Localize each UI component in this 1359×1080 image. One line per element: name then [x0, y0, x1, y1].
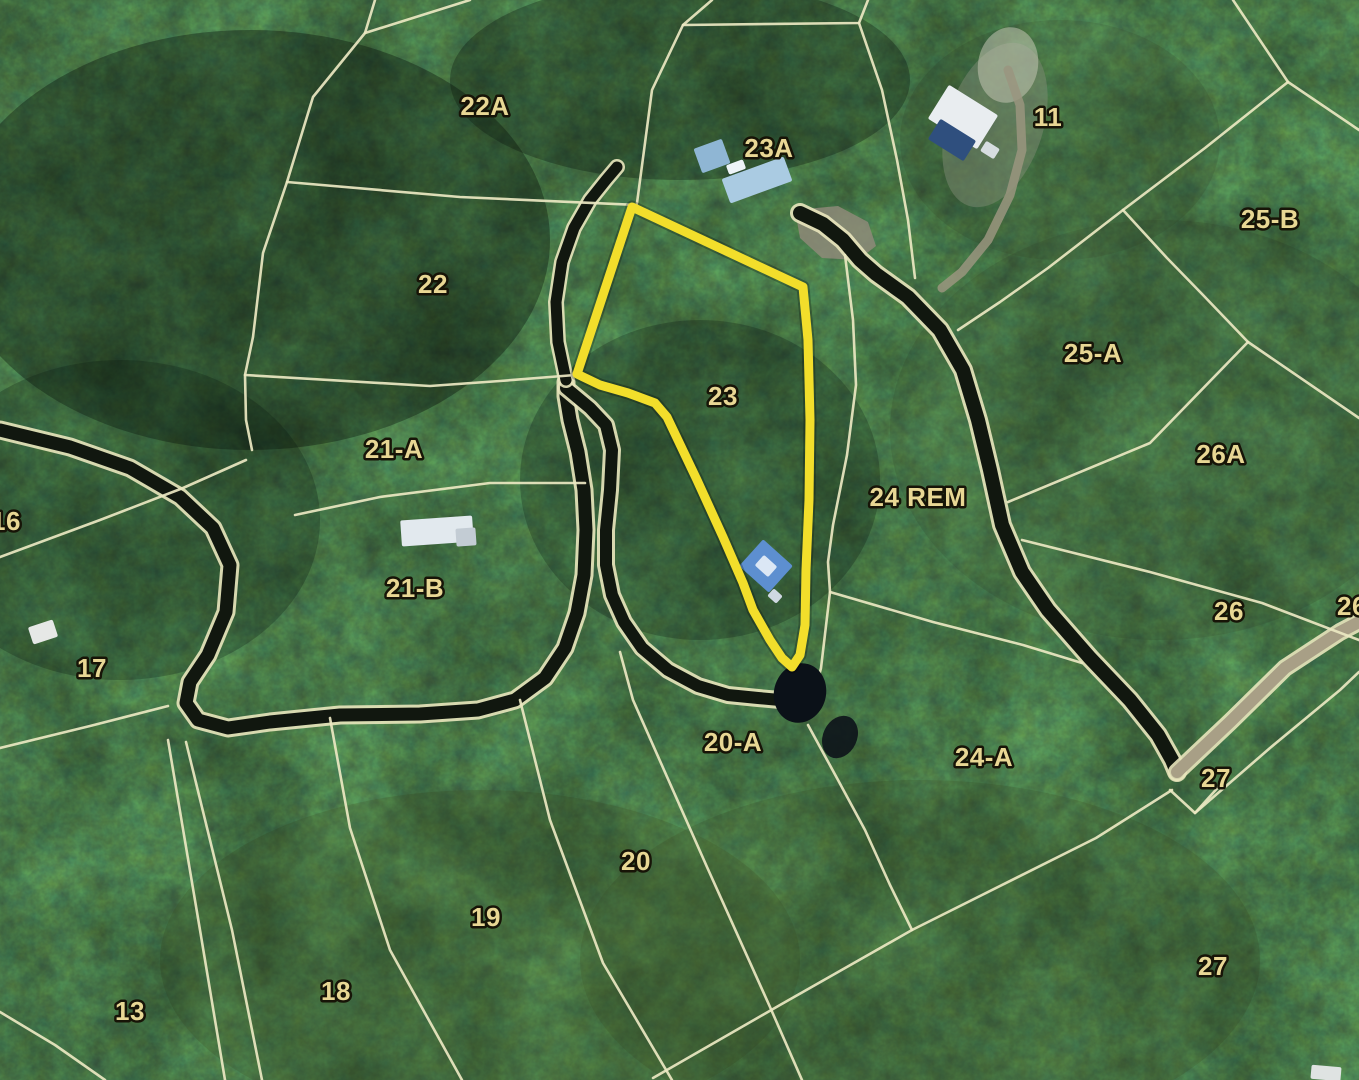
parcel-label-13: 13 [115, 996, 145, 1026]
parcel-label-16: 16 [0, 506, 21, 536]
parcel-map: 22A23A1125-B2225-A2326A21-A24 REM1621-B2… [0, 0, 1359, 1080]
parcel-label-23A: 23A [744, 133, 793, 163]
structure-bottom-right [1310, 1065, 1341, 1080]
parcel-label-20-A: 20-A [704, 727, 762, 757]
canopy-shadow [0, 0, 1359, 1080]
house-21b-section [455, 527, 476, 546]
parcel-label-27: 27 [1201, 763, 1231, 793]
parcel-label-17: 17 [77, 653, 107, 683]
parcel-label-25-A: 25-A [1064, 338, 1122, 368]
parcel-label-26: 26 [1214, 596, 1244, 626]
parcel-label-23: 23 [708, 381, 738, 411]
parcel-label-24-REM: 24 REM [870, 482, 967, 512]
parcel-label-21-A: 21-A [365, 434, 423, 464]
parcel-label-22: 22 [418, 269, 448, 299]
parcel-label-24-A: 24-A [955, 742, 1013, 772]
parcel-label-25-B: 25-B [1241, 204, 1299, 234]
parcel-label-27: 27 [1198, 951, 1228, 981]
parcel-label-11: 11 [1034, 102, 1063, 132]
parcel-label-19: 19 [471, 902, 501, 932]
parcel-label-18: 18 [321, 976, 351, 1006]
parcel-label-20: 20 [621, 846, 651, 876]
parcel-label-26A: 26A [1196, 439, 1245, 469]
parcel-label-21-B: 21-B [386, 573, 444, 603]
map-viewport: 22A23A1125-B2225-A2326A21-A24 REM1621-B2… [0, 0, 1359, 1080]
terrain-layer [0, 0, 1359, 1080]
parcel-label-22A: 22A [460, 91, 509, 121]
parcel-label-26: 26 [1337, 591, 1359, 621]
